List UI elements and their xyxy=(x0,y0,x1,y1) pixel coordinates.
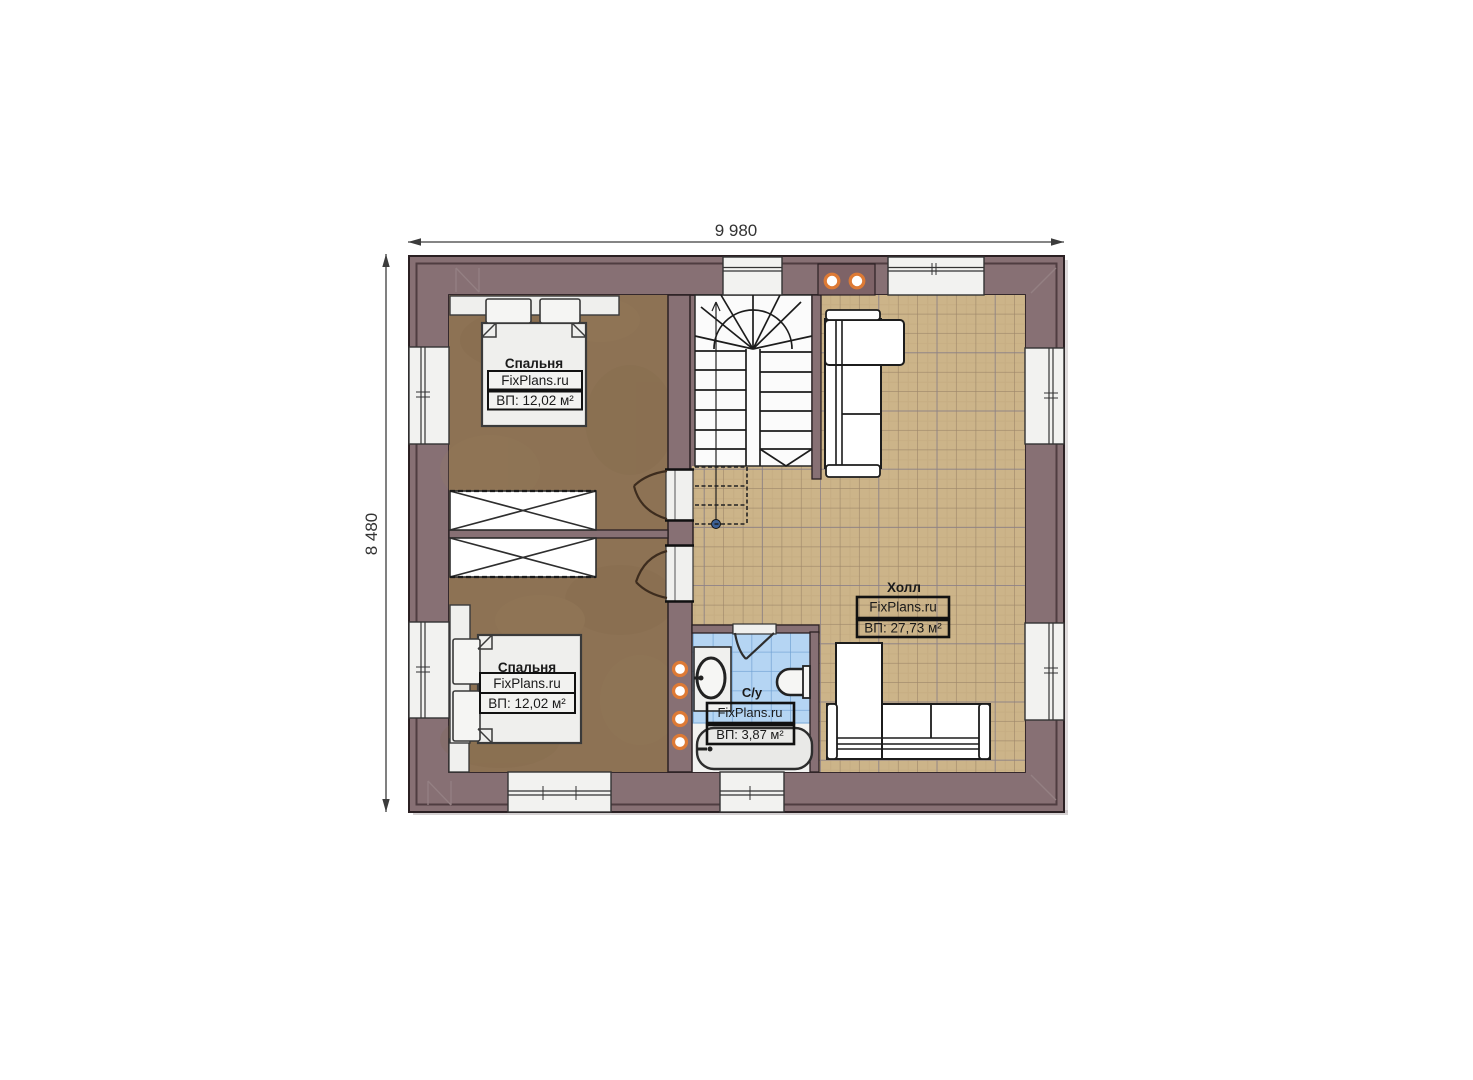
svg-text:FixPlans.ru: FixPlans.ru xyxy=(717,705,782,720)
svg-text:ВП: 3,87 м²: ВП: 3,87 м² xyxy=(716,727,784,742)
svg-text:9 980: 9 980 xyxy=(715,221,758,240)
svg-text:FixPlans.ru: FixPlans.ru xyxy=(869,600,937,615)
svg-text:Спальня: Спальня xyxy=(505,356,563,371)
svg-text:Холл: Холл xyxy=(887,580,921,595)
svg-text:С/у: С/у xyxy=(742,685,763,700)
svg-text:8 480: 8 480 xyxy=(362,513,381,556)
svg-text:ВП: 12,02 м²: ВП: 12,02 м² xyxy=(496,393,574,408)
svg-text:FixPlans.ru: FixPlans.ru xyxy=(493,676,561,691)
svg-text:FixPlans.ru: FixPlans.ru xyxy=(501,373,569,388)
svg-text:ВП: 27,73 м²: ВП: 27,73 м² xyxy=(864,621,942,636)
svg-text:ВП: 12,02 м²: ВП: 12,02 м² xyxy=(488,696,566,711)
